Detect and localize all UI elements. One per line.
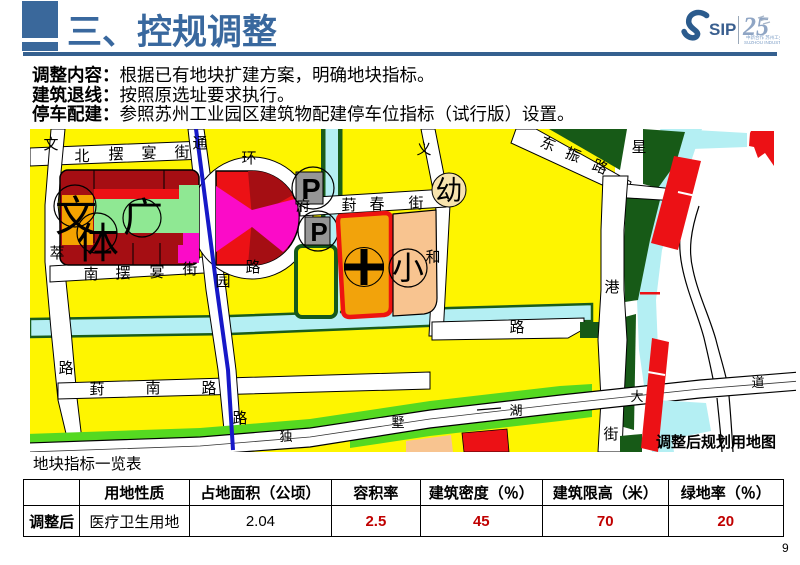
svg-text:路: 路 bbox=[509, 319, 524, 336]
svg-text:府: 府 bbox=[296, 198, 310, 214]
svg-text:路: 路 bbox=[232, 410, 247, 427]
svg-text:南: 南 bbox=[145, 380, 160, 397]
svg-text:街: 街 bbox=[182, 261, 197, 278]
svg-text:路: 路 bbox=[201, 380, 216, 397]
svg-text:湖: 湖 bbox=[509, 403, 522, 418]
svg-text:大: 大 bbox=[630, 389, 643, 404]
svg-text:春: 春 bbox=[369, 196, 384, 213]
svg-text:港: 港 bbox=[604, 279, 619, 296]
svg-text:宴: 宴 bbox=[141, 144, 156, 162]
svg-text:墅: 墅 bbox=[391, 415, 404, 430]
svg-text:文: 文 bbox=[43, 136, 58, 153]
svg-text:路: 路 bbox=[58, 360, 73, 377]
svg-text:通: 通 bbox=[192, 135, 207, 152]
svg-text:街: 街 bbox=[603, 426, 618, 443]
svg-text:街: 街 bbox=[174, 144, 189, 161]
svg-text:路: 路 bbox=[245, 259, 260, 276]
svg-text:调整后规划用地图: 调整后规划用地图 bbox=[656, 433, 776, 451]
svg-text:P: P bbox=[310, 217, 327, 247]
svg-text:葑: 葑 bbox=[341, 197, 356, 214]
svg-text:义: 义 bbox=[416, 141, 431, 158]
svg-text:园: 园 bbox=[215, 273, 230, 290]
svg-text:萃: 萃 bbox=[49, 245, 64, 262]
svg-text:摆: 摆 bbox=[108, 146, 123, 163]
svg-text:独: 独 bbox=[279, 429, 292, 444]
svg-text:小: 小 bbox=[392, 250, 424, 286]
svg-text:星: 星 bbox=[631, 139, 646, 156]
svg-text:和: 和 bbox=[425, 249, 440, 266]
svg-text:街: 街 bbox=[408, 195, 423, 212]
svg-text:北: 北 bbox=[74, 148, 89, 165]
svg-text:宴: 宴 bbox=[149, 263, 164, 281]
svg-text:南: 南 bbox=[83, 266, 98, 283]
svg-text:广: 广 bbox=[123, 196, 163, 240]
svg-text:体: 体 bbox=[77, 220, 119, 267]
svg-text:环: 环 bbox=[241, 150, 256, 167]
svg-text:葑: 葑 bbox=[89, 381, 104, 398]
svg-text:道: 道 bbox=[751, 375, 764, 390]
svg-text:幼: 幼 bbox=[436, 176, 463, 206]
svg-text:摆: 摆 bbox=[115, 265, 130, 282]
